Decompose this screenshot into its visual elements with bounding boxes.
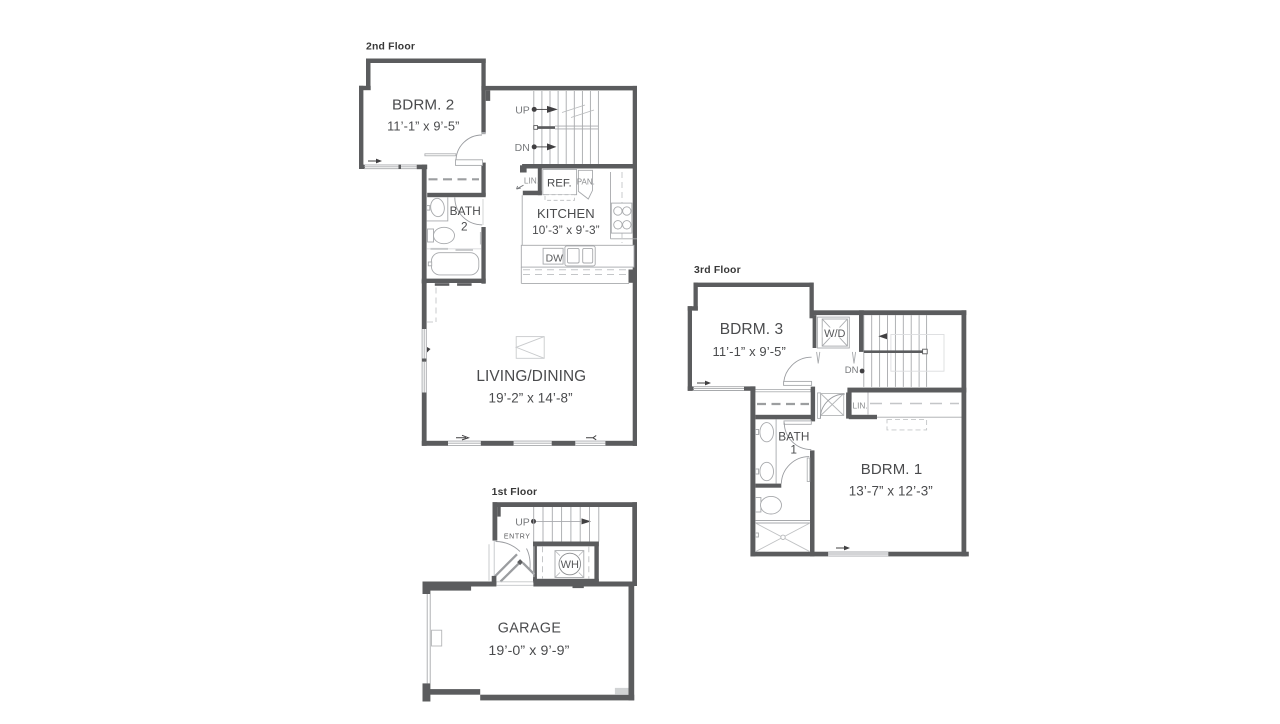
svg-text:1st Floor: 1st Floor [492,487,538,498]
svg-text:2nd Floor: 2nd Floor [366,42,415,53]
svg-text:UP: UP [515,516,530,528]
svg-text:11’-1” x 9’-5”: 11’-1” x 9’-5” [387,119,459,134]
svg-text:LIN.: LIN. [524,176,539,186]
svg-text:BATH: BATH [778,430,809,444]
svg-text:11’-1” x 9’-5”: 11’-1” x 9’-5” [712,344,785,359]
svg-text:DN: DN [515,142,530,154]
svg-text:WH: WH [561,559,579,571]
svg-text:REF.: REF. [547,177,572,189]
svg-text:DW: DW [546,253,564,264]
svg-text:GARAGE: GARAGE [498,621,562,637]
svg-text:1: 1 [790,443,797,457]
svg-text:13’-7” x 12’-3”: 13’-7” x 12’-3” [849,483,933,498]
svg-text:BATH: BATH [450,204,481,218]
svg-text:3rd Floor: 3rd Floor [694,265,741,276]
svg-text:W/D: W/D [824,328,845,340]
svg-text:BDRM. 3: BDRM. 3 [720,321,784,338]
svg-text:2: 2 [461,220,468,234]
svg-text:19’-2” x 14’-8”: 19’-2” x 14’-8” [489,391,573,406]
svg-text:10’-3” x 9’-3”: 10’-3” x 9’-3” [532,223,600,237]
svg-text:LIVING/DINING: LIVING/DINING [476,368,586,385]
svg-text:ENTRY: ENTRY [504,533,531,540]
svg-text:UP: UP [515,104,530,116]
svg-text:BDRM. 2: BDRM. 2 [392,96,454,113]
svg-text:BDRM. 1: BDRM. 1 [861,461,923,478]
svg-text:LIN.: LIN. [853,401,868,411]
svg-text:KITCHEN: KITCHEN [537,206,595,221]
svg-text:PAN.: PAN. [577,177,595,186]
svg-text:19’-0” x 9’-9”: 19’-0” x 9’-9” [488,643,569,659]
svg-text:DN: DN [845,365,859,376]
